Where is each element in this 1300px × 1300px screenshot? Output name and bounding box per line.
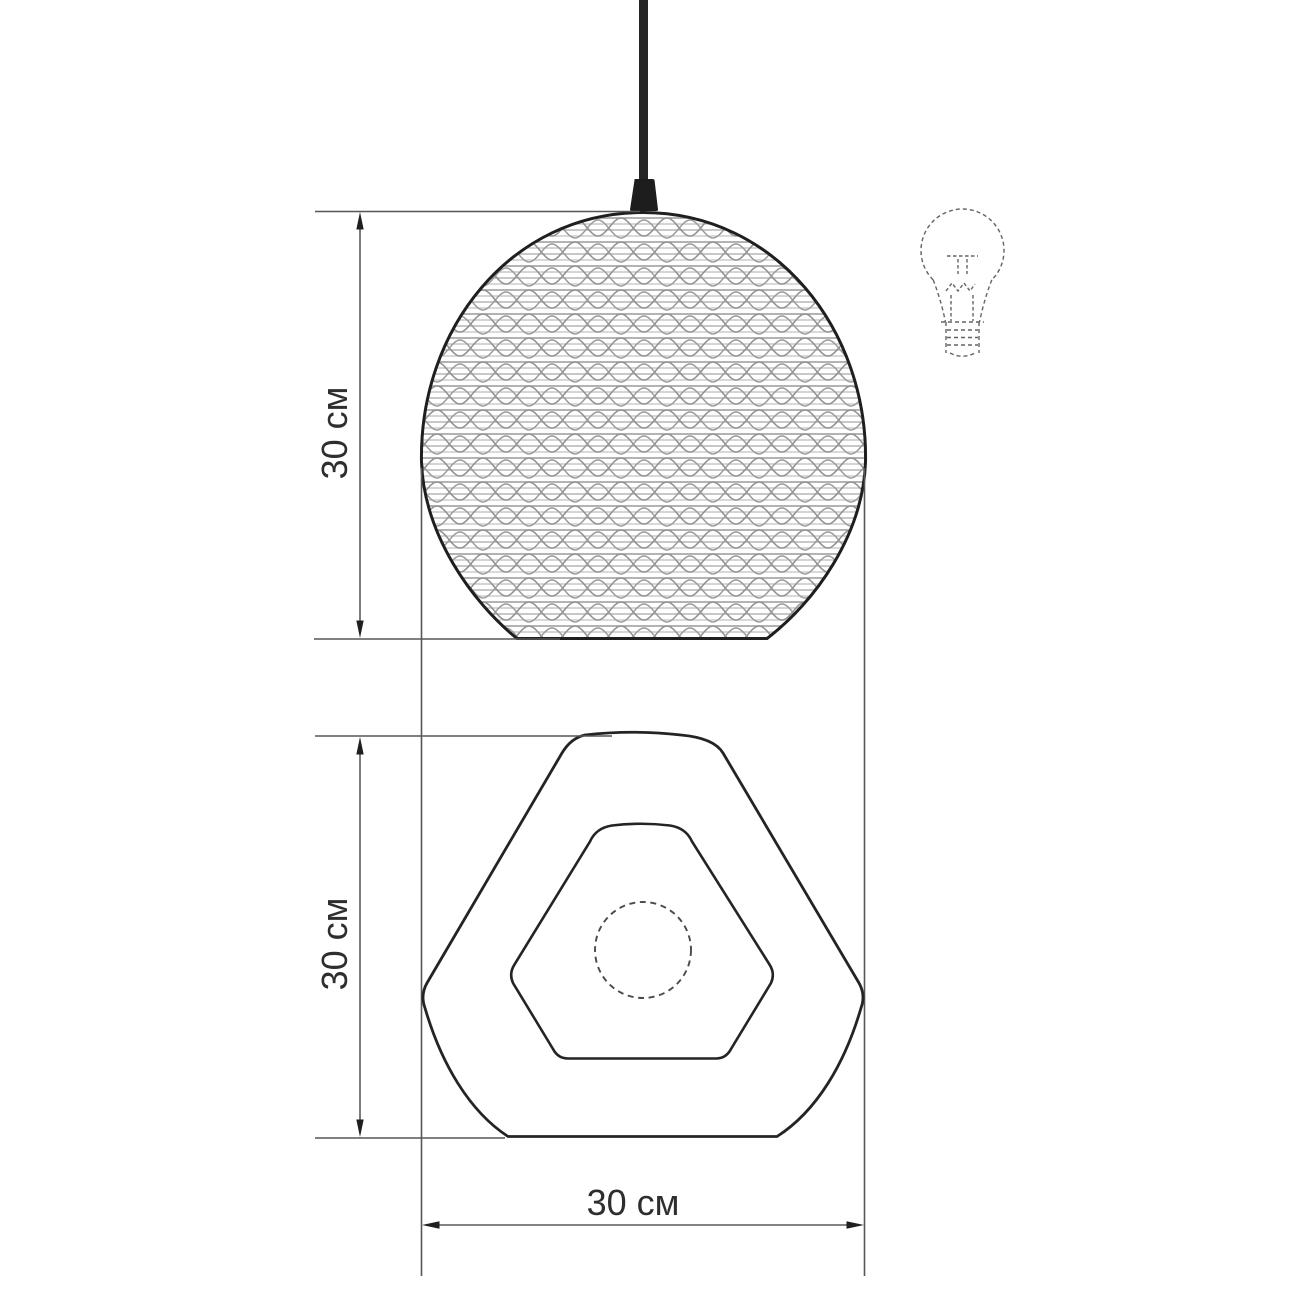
svg-text:30 см: 30 см [587,1182,680,1223]
svg-text:30 см: 30 см [314,898,355,991]
svg-text:30 см: 30 см [314,387,355,480]
